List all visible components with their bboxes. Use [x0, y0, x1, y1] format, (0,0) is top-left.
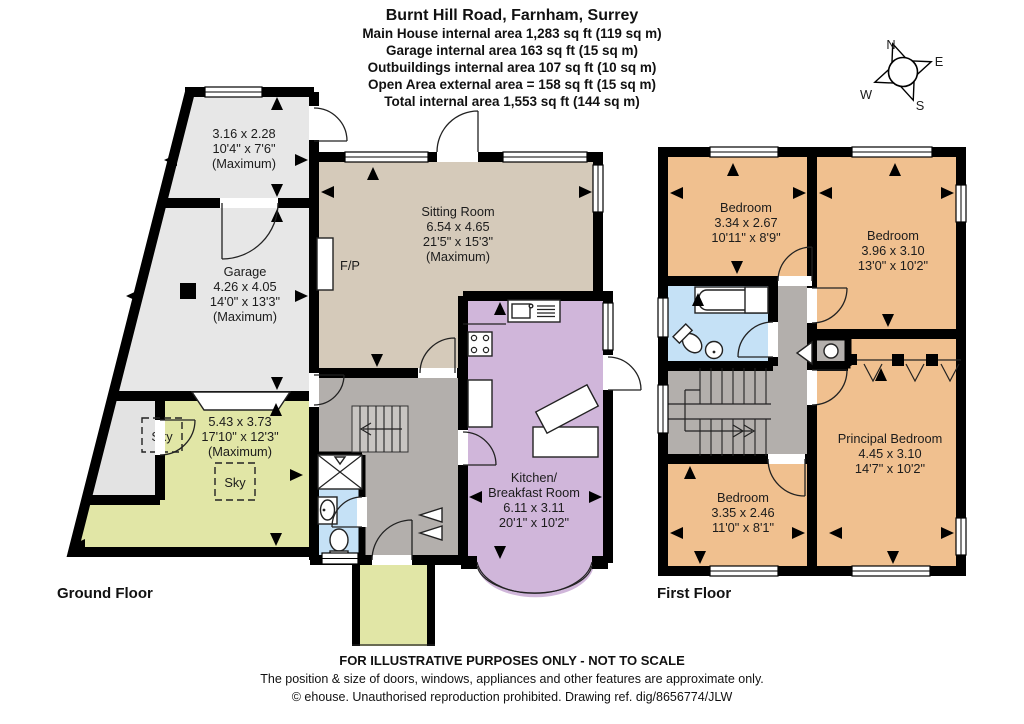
- first-floor-plan: Bedroom 3.34 x 2.67 10'11" x 8'9" Bedroo…: [663, 152, 961, 571]
- bath: [695, 287, 768, 313]
- ground-floor-label: Ground Floor: [57, 585, 153, 602]
- garage-dim-ft: 14'0" x 13'3": [210, 294, 280, 309]
- store-max: (Maximum): [212, 156, 276, 171]
- kitchen-dim-ft: 20'1" x 10'2": [499, 515, 569, 530]
- door-opening: [155, 420, 165, 455]
- window: [503, 152, 587, 162]
- kitchen-dim-m: 6.11 x 3.11: [503, 500, 564, 515]
- door-opening: [309, 373, 319, 407]
- open-area-dim-m: 5.43 x 3.73: [208, 414, 271, 429]
- kitchen-name-2: Breakfast Room: [488, 485, 580, 500]
- first-floor-label: First Floor: [657, 585, 731, 602]
- window: [603, 303, 613, 350]
- compass-e-label: E: [935, 54, 944, 69]
- principal-dim-m: 4.45 x 3.10: [858, 446, 921, 461]
- kitchen-counter: [468, 380, 492, 427]
- door-opening: [603, 355, 613, 390]
- sink-ground: [318, 497, 337, 524]
- bedroom3-name: Bedroom: [717, 490, 769, 505]
- sitting-room-dim-m: 6.54 x 4.65: [426, 219, 489, 234]
- door-opening: [768, 454, 805, 464]
- skylight-2-label: Sky: [224, 475, 246, 490]
- sitting-room-dim-ft: 21'5" x 15'3": [423, 234, 493, 249]
- door-opening: [768, 322, 778, 357]
- door-opening: [778, 276, 812, 286]
- door-opening: [357, 497, 367, 527]
- disclaimer-line-2: The position & size of doors, windows, a…: [0, 670, 1024, 688]
- principal-name: Principal Bedroom: [838, 431, 943, 446]
- principal-dim-ft: 14'7" x 10'2": [855, 461, 925, 476]
- kitchen-name-1: Kitchen/: [511, 470, 558, 485]
- window: [852, 566, 930, 576]
- bedroom2-name: Bedroom: [867, 228, 919, 243]
- window: [322, 553, 358, 564]
- compass-w-label: W: [860, 87, 873, 102]
- door-opening: [372, 555, 412, 565]
- open-area-max: (Maximum): [208, 444, 272, 459]
- bedroom3-dim-ft: 11'0" x 8'1": [712, 520, 774, 535]
- window: [345, 152, 428, 162]
- copyright-line: © ehouse. Unauthorised reproduction proh…: [0, 688, 1024, 706]
- shower: [318, 455, 362, 489]
- compass-icon: N E W S: [860, 34, 943, 113]
- sitting-room-max: (Maximum): [426, 249, 490, 264]
- bedroom2-dim-m: 3.96 x 3.10: [861, 243, 924, 258]
- door-opening: [807, 288, 817, 323]
- bedroom2-dim-ft: 13'0" x 10'2": [858, 258, 928, 273]
- bedroom3-dim-m: 3.35 x 2.46: [711, 505, 774, 520]
- garage-max: (Maximum): [213, 309, 277, 324]
- bedroom1-dim-m: 3.34 x 2.67: [714, 215, 777, 230]
- garage-dim-m: 4.26 x 4.05: [213, 279, 276, 294]
- door-opening: [807, 370, 817, 405]
- window: [205, 87, 262, 97]
- door-opening: [437, 152, 478, 162]
- floor-plan-canvas: Sky Sky 3.16 x 2.28 10'4" x 7'6" (Maximu…: [0, 0, 1024, 724]
- fireplace: [317, 238, 333, 290]
- window: [956, 185, 966, 222]
- compass-s-label: S: [916, 98, 925, 113]
- sink-first: [706, 342, 723, 359]
- compass-n-label: N: [886, 37, 895, 52]
- floorplan-page: Burnt Hill Road, Farnham, Surrey Main Ho…: [0, 0, 1024, 724]
- disclaimer-block: FOR ILLUSTRATIVE PURPOSES ONLY - NOT TO …: [0, 652, 1024, 706]
- kitchen-sink-unit: [508, 300, 560, 322]
- store-dim-ft: 10'4" x 7'6": [212, 141, 275, 156]
- garage-pillar: [180, 283, 196, 299]
- door-opening: [458, 430, 468, 465]
- window: [956, 518, 966, 555]
- window: [710, 566, 778, 576]
- disclaimer-line-1: FOR ILLUSTRATIVE PURPOSES ONLY - NOT TO …: [0, 652, 1024, 670]
- open-area-dim-ft: 17'10" x 12'3": [201, 429, 278, 444]
- fireplace-label: F/P: [340, 258, 360, 273]
- store-dim-m: 3.16 x 2.28: [212, 126, 275, 141]
- garage-name: Garage: [224, 264, 267, 279]
- window: [658, 298, 668, 337]
- door-opening: [309, 106, 319, 140]
- window: [658, 385, 668, 433]
- door-opening: [418, 368, 457, 378]
- bedroom1-dim-ft: 10'11" x 8'9": [711, 230, 780, 245]
- garden-path: [352, 560, 435, 646]
- door-opening: [220, 198, 278, 208]
- sitting-room-name: Sitting Room: [421, 204, 494, 219]
- window: [852, 147, 932, 157]
- bedroom1-name: Bedroom: [720, 200, 772, 215]
- window: [710, 147, 778, 157]
- window: [593, 165, 603, 212]
- stairs-ground: [352, 406, 408, 452]
